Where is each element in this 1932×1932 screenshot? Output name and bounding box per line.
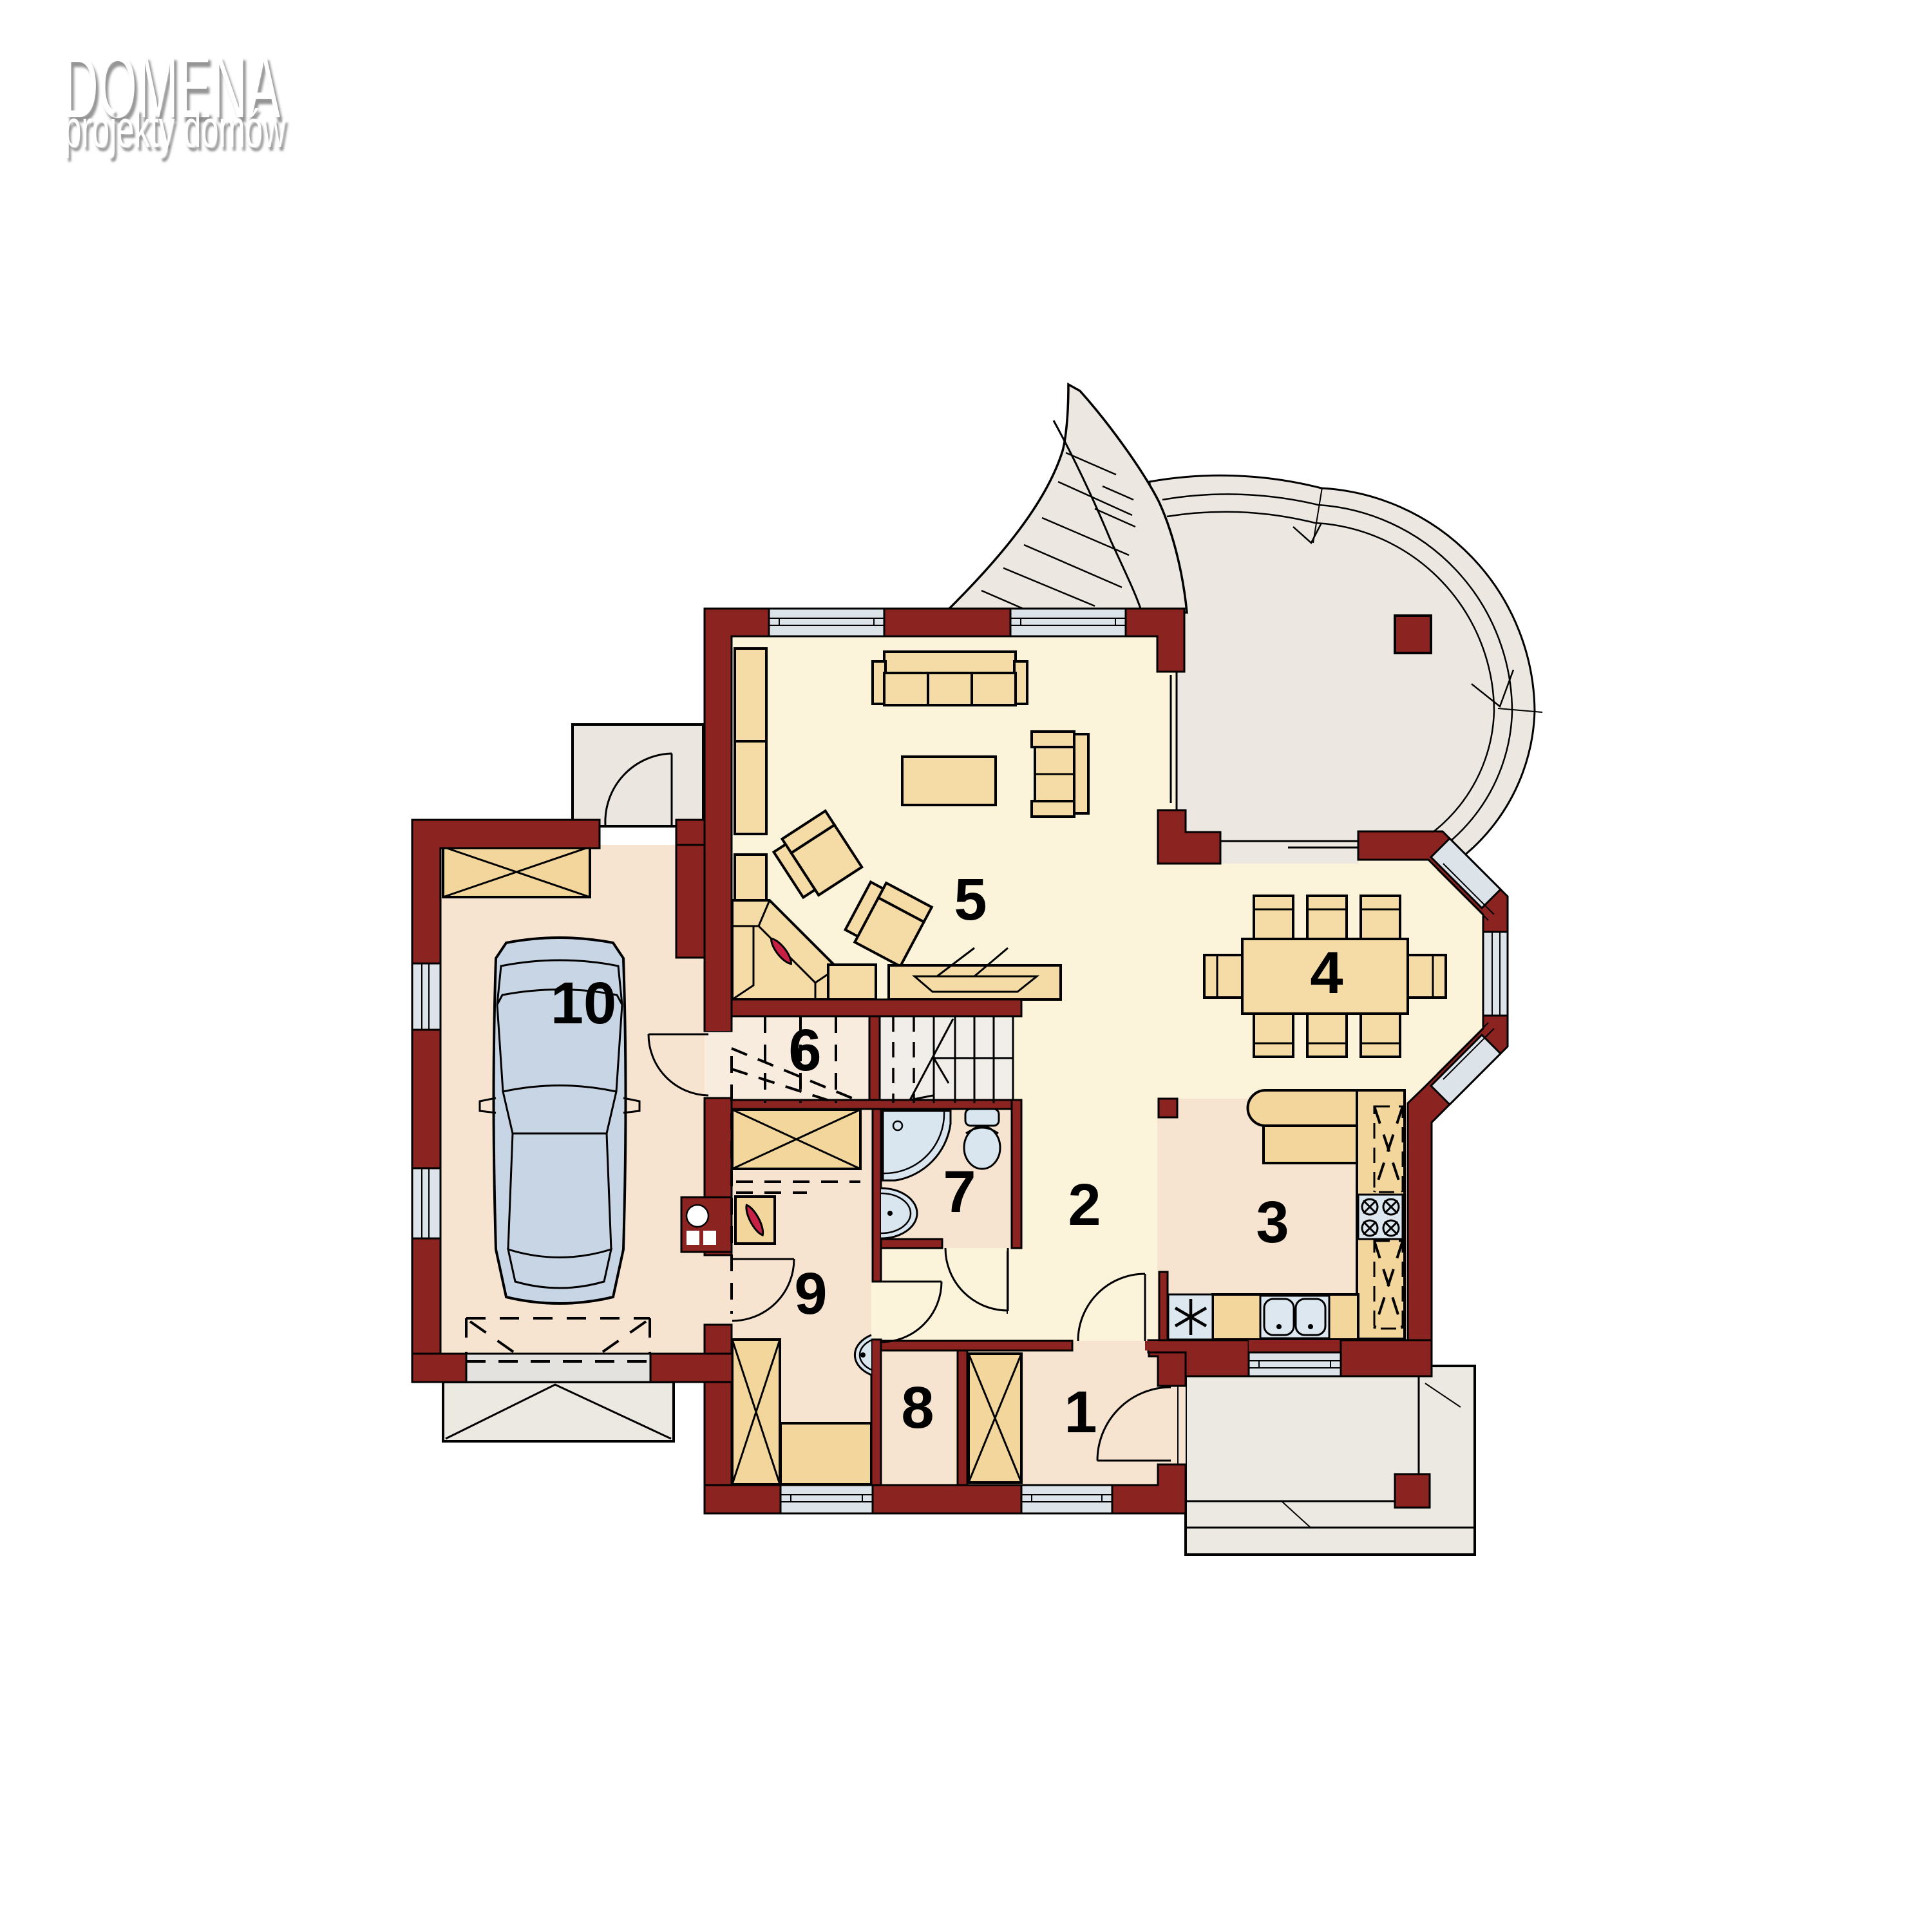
svg-text:10: 10	[551, 971, 616, 1036]
svg-text:3: 3	[1256, 1189, 1289, 1255]
svg-text:8: 8	[901, 1375, 934, 1441]
svg-text:9: 9	[794, 1261, 827, 1327]
svg-text:1: 1	[1064, 1379, 1097, 1445]
svg-text:2: 2	[1068, 1172, 1101, 1238]
svg-text:4: 4	[1310, 940, 1343, 1006]
svg-text:7: 7	[943, 1159, 976, 1225]
svg-text:5: 5	[954, 867, 987, 933]
svg-text:6: 6	[788, 1018, 821, 1083]
